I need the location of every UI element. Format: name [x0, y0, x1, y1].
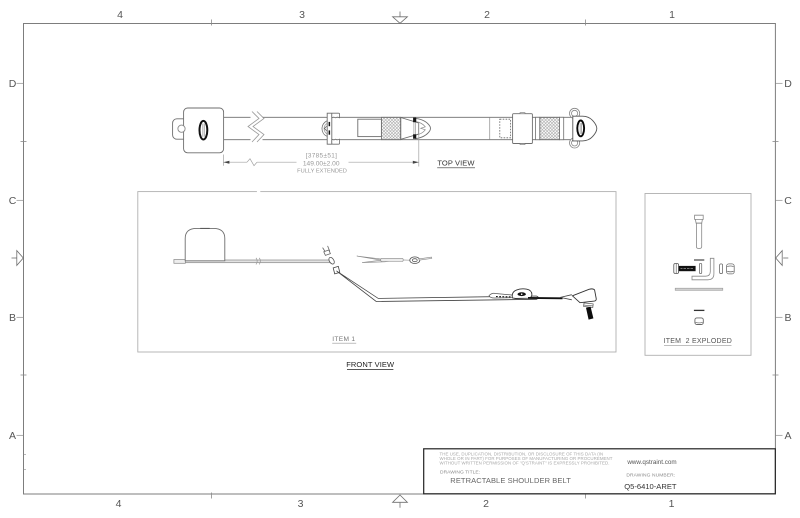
svg-text:Q5-6410-ARET: Q5-6410-ARET: [624, 482, 677, 491]
svg-text:RETRACTABLE SHOULDER BELT: RETRACTABLE SHOULDER BELT: [450, 476, 571, 485]
svg-text:1: 1: [669, 9, 675, 21]
svg-text:ITEM 2 EXPLODED: ITEM 2 EXPLODED: [664, 338, 733, 345]
svg-text:FRONT VIEW: FRONT VIEW: [346, 360, 395, 369]
svg-text:3: 3: [298, 498, 304, 510]
svg-text:4: 4: [116, 498, 122, 510]
svg-text:C: C: [784, 195, 792, 207]
svg-text:4: 4: [117, 9, 123, 21]
svg-text:WITHOUT WRITTEN PERMISSION OF: WITHOUT WRITTEN PERMISSION OF "Q'STRAINT…: [440, 461, 610, 466]
svg-text:A: A: [784, 430, 791, 442]
svg-text:1: 1: [669, 498, 675, 510]
svg-text:[3785±51]: [3785±51]: [306, 152, 338, 159]
svg-text:B: B: [784, 312, 791, 324]
svg-text:D: D: [784, 78, 792, 90]
svg-text:DRAWING NUMBER:: DRAWING NUMBER:: [626, 473, 675, 479]
svg-text:149.00±2.00: 149.00±2.00: [303, 161, 340, 168]
svg-text:2: 2: [483, 498, 489, 510]
svg-text:C: C: [9, 195, 17, 207]
svg-text:A: A: [9, 430, 16, 442]
svg-text:www.qstraint.com: www.qstraint.com: [626, 459, 676, 466]
svg-text:FULLY EXTENDED: FULLY EXTENDED: [297, 169, 347, 175]
svg-text:D: D: [9, 78, 17, 90]
svg-text:TOP VIEW: TOP VIEW: [437, 159, 475, 168]
svg-text:3: 3: [299, 9, 305, 21]
svg-text:ITEM 1: ITEM 1: [332, 336, 355, 343]
svg-text:2: 2: [484, 9, 490, 21]
svg-text:B: B: [9, 312, 16, 324]
svg-text:DRAWING TITLE:: DRAWING TITLE:: [440, 470, 480, 476]
